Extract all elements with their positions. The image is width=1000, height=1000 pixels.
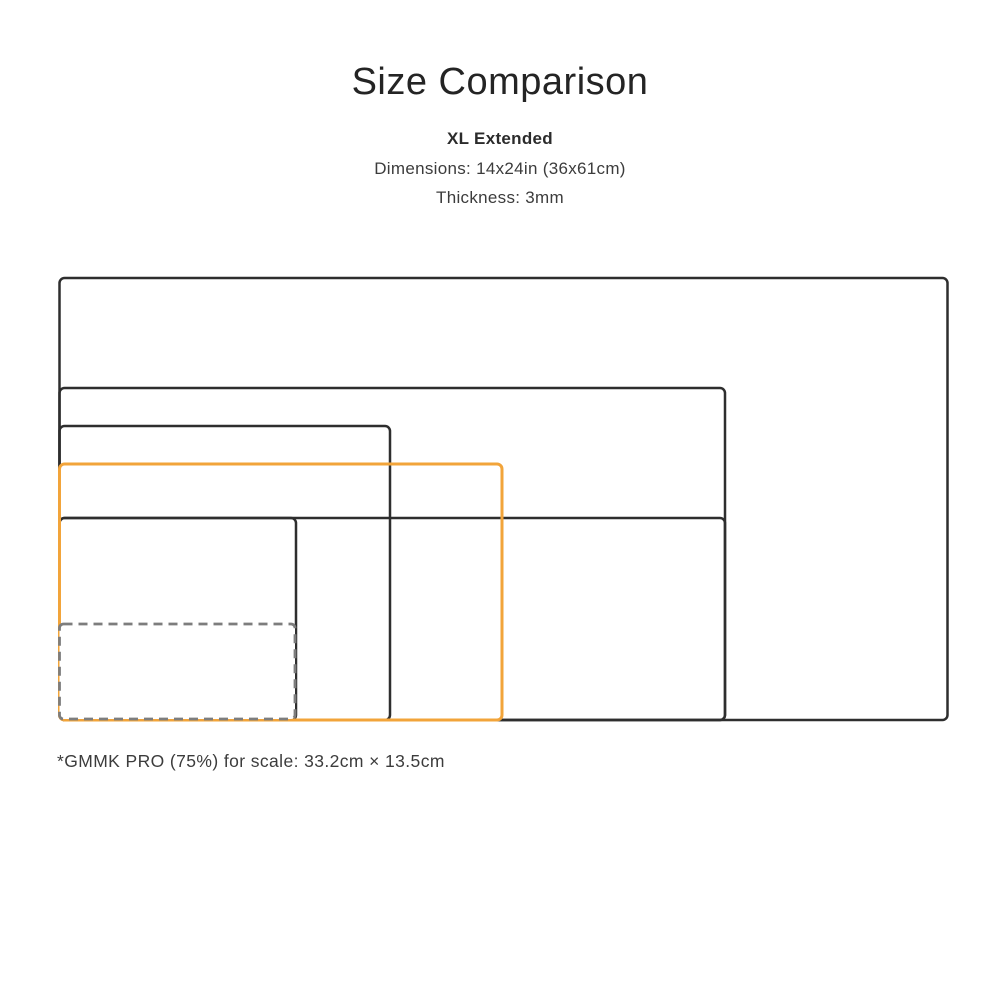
keyboard-scale-rect [60, 624, 296, 719]
size-comparison-diagram [0, 0, 1000, 1000]
size-comparison-page: Size Comparison XL Extended Dimensions: … [0, 0, 1000, 1000]
scale-footnote: *GMMK PRO (75%) for scale: 33.2cm × 13.5… [57, 750, 445, 772]
